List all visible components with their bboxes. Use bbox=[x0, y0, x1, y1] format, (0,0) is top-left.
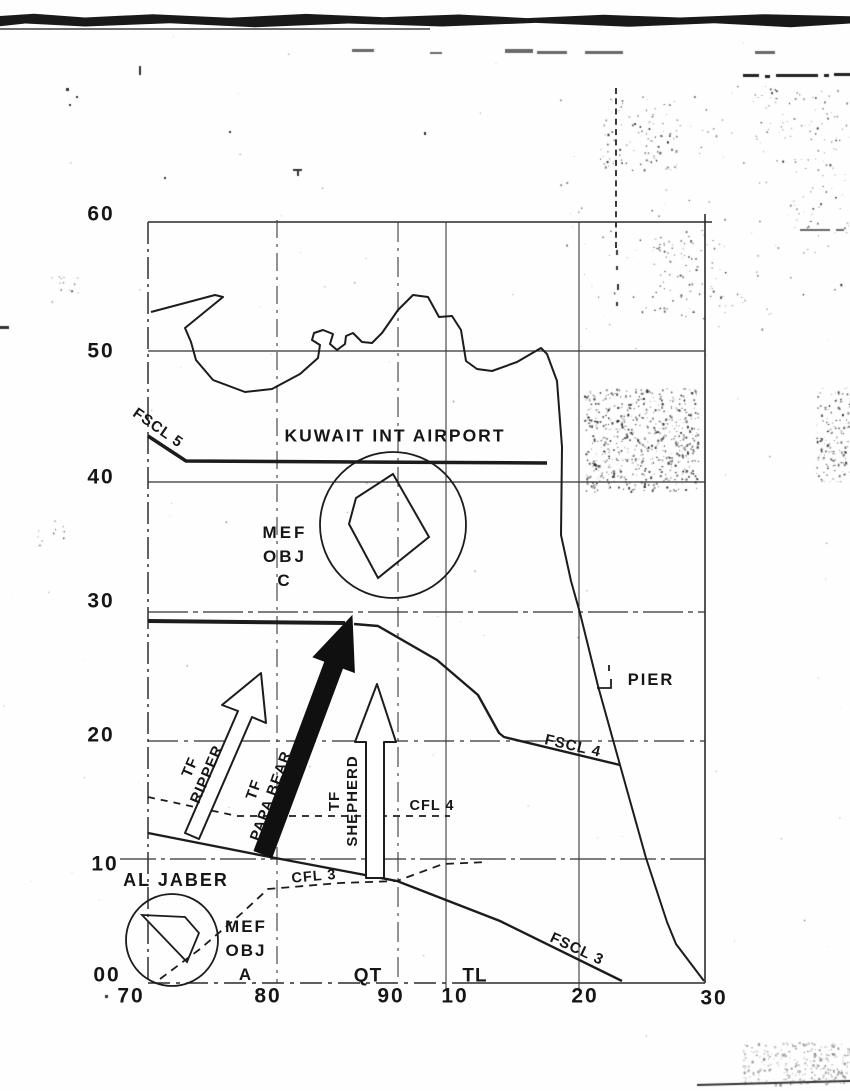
objective-a-label: MEF OBJ A bbox=[225, 915, 267, 987]
y-axis-label-30: 30 bbox=[87, 591, 114, 612]
grid-zone-label-qt: QT bbox=[354, 967, 382, 986]
scan-artifact-band-tail bbox=[0, 28, 430, 30]
objective-c-line-1: MEF bbox=[263, 521, 308, 545]
map-linework bbox=[0, 0, 850, 1091]
airport-label: KUWAIT INT AIRPORT bbox=[284, 427, 505, 445]
y-axis-label-10: 10 bbox=[91, 854, 118, 875]
x-axis-label-30: 30 bbox=[700, 988, 727, 1009]
scan-artifact-vertical-dash bbox=[615, 88, 617, 248]
pier-label: PIER bbox=[628, 672, 675, 689]
cfl4-label: CFL 4 bbox=[409, 799, 454, 814]
tf-shepherd-line-2: SHEPHERD bbox=[344, 755, 362, 846]
al-jaber-outline bbox=[142, 915, 199, 962]
x-axis-label-80: 80 bbox=[254, 986, 281, 1007]
y-axis-label-50: 50 bbox=[87, 341, 114, 362]
objective-a-circle bbox=[126, 894, 218, 986]
pier-symbol bbox=[597, 665, 611, 688]
y-axis-label-40: 40 bbox=[87, 467, 114, 488]
y-axis-label-20: 20 bbox=[87, 725, 114, 746]
y-axis-label-60: 60 bbox=[87, 204, 114, 225]
al-jaber-label: AL JABER bbox=[123, 871, 229, 889]
scanned-map-page: { "map": { "axis": { "y_labels": ["60","… bbox=[0, 0, 850, 1091]
objective-c-line-2: OBJ bbox=[263, 545, 308, 569]
objective-a-line-1: MEF bbox=[225, 915, 267, 939]
coastline bbox=[151, 295, 704, 981]
x-axis-label-70: 70 bbox=[117, 986, 144, 1007]
objective-a-line-2: OBJ bbox=[225, 939, 267, 963]
fscl4-line-west bbox=[148, 621, 345, 623]
x-axis-label-90: 90 bbox=[377, 986, 404, 1007]
tf-shepherd-label: TF SHEPHERD bbox=[326, 755, 362, 846]
objective-a-line-3: A bbox=[225, 963, 267, 987]
airport-outline bbox=[349, 474, 429, 578]
tf-shepherd-line-1: TF bbox=[326, 755, 344, 846]
y-axis-label-00: 00 bbox=[93, 965, 120, 986]
objective-c-line-3: C bbox=[263, 569, 308, 593]
grid-zone-label-tl: TL bbox=[462, 967, 487, 986]
x-axis-label-10: 10 bbox=[441, 986, 468, 1007]
x-axis-label-20: 20 bbox=[571, 986, 598, 1007]
objective-c-label: MEF OBJ C bbox=[263, 521, 308, 593]
